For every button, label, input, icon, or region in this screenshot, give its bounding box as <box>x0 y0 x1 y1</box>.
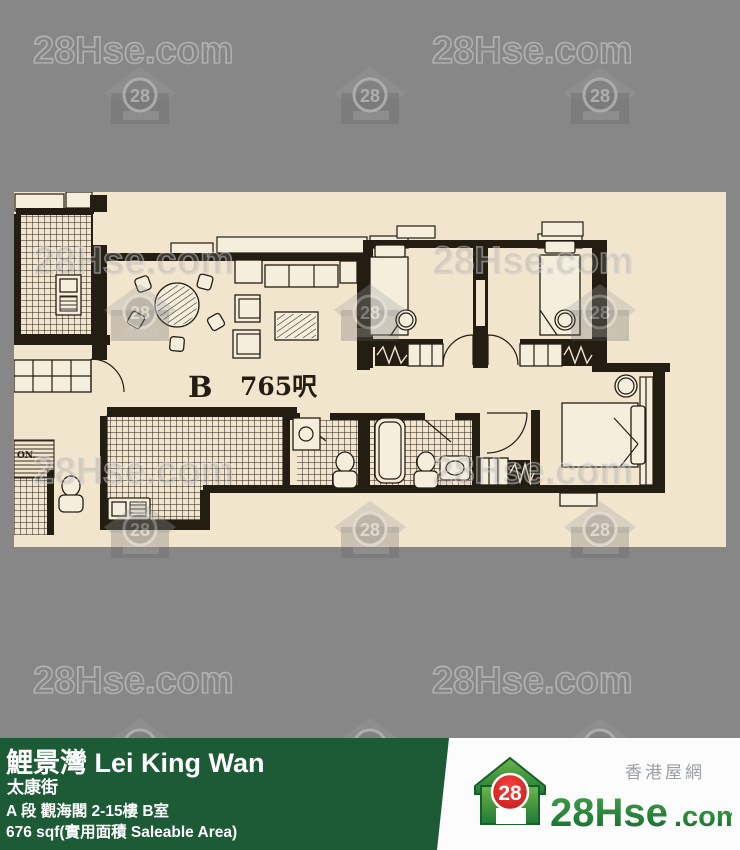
logo-site-name: 28Hse <box>550 791 668 835</box>
watermark-house-icon: 28 <box>333 66 407 124</box>
window <box>542 222 583 236</box>
logo-house-icon: 28 <box>475 758 545 824</box>
bed <box>562 403 638 467</box>
footer-bar: 鯉景灣 Lei King Wan 太康街 A 段 觀海閣 2-15樓 B室 67… <box>0 738 740 850</box>
watermark-house-icon: 28 <box>103 66 177 124</box>
street-name: 太康街 <box>7 773 58 798</box>
svg-text:28: 28 <box>130 86 150 106</box>
bay-window <box>217 237 367 253</box>
logo-site-suffix: .com <box>674 801 732 833</box>
logo-badge: 28 <box>498 782 522 805</box>
watermark-house-icon: 28 <box>563 66 637 124</box>
pillow <box>545 241 575 253</box>
closet <box>520 344 562 366</box>
watermark-text: 28Hse.com <box>33 660 234 703</box>
watermark-text: 28Hse.com <box>432 30 633 73</box>
site-logo[interactable]: 28 28Hse .com 香港屋網 <box>470 752 732 844</box>
wardrobe <box>508 460 530 486</box>
watermark-text: 28Hse.com <box>432 660 633 703</box>
basin <box>293 418 320 450</box>
ac-ledge <box>560 493 597 506</box>
page: ON. <box>0 0 740 850</box>
floor-plan-image: ON. <box>14 192 726 547</box>
svg-text:28: 28 <box>590 86 610 106</box>
block-floor-unit: A 段 觀海閣 2-15樓 B室 <box>6 799 169 821</box>
area-label: 765呎 <box>240 372 318 401</box>
pillow <box>631 406 645 464</box>
saleable-area: 676 sqf(實用面積 Saleable Area) <box>6 820 237 842</box>
unit-label: B <box>188 370 213 404</box>
basin <box>440 456 470 480</box>
corner-label: ON. <box>17 451 36 461</box>
window <box>397 226 435 238</box>
coffee-table <box>275 312 318 340</box>
pillow <box>375 245 405 257</box>
neighbor-bath-tiles <box>14 478 47 535</box>
floor-plan-drawing: ON. <box>14 192 726 547</box>
closet <box>480 458 508 485</box>
closet <box>408 344 443 366</box>
svg-text:28: 28 <box>360 86 380 106</box>
logo-tagline: 香港屋網 <box>625 763 705 782</box>
bedroom-1 <box>363 222 607 368</box>
watermark-text: 28Hse.com <box>33 30 234 73</box>
neighbor-stairs <box>14 360 91 392</box>
